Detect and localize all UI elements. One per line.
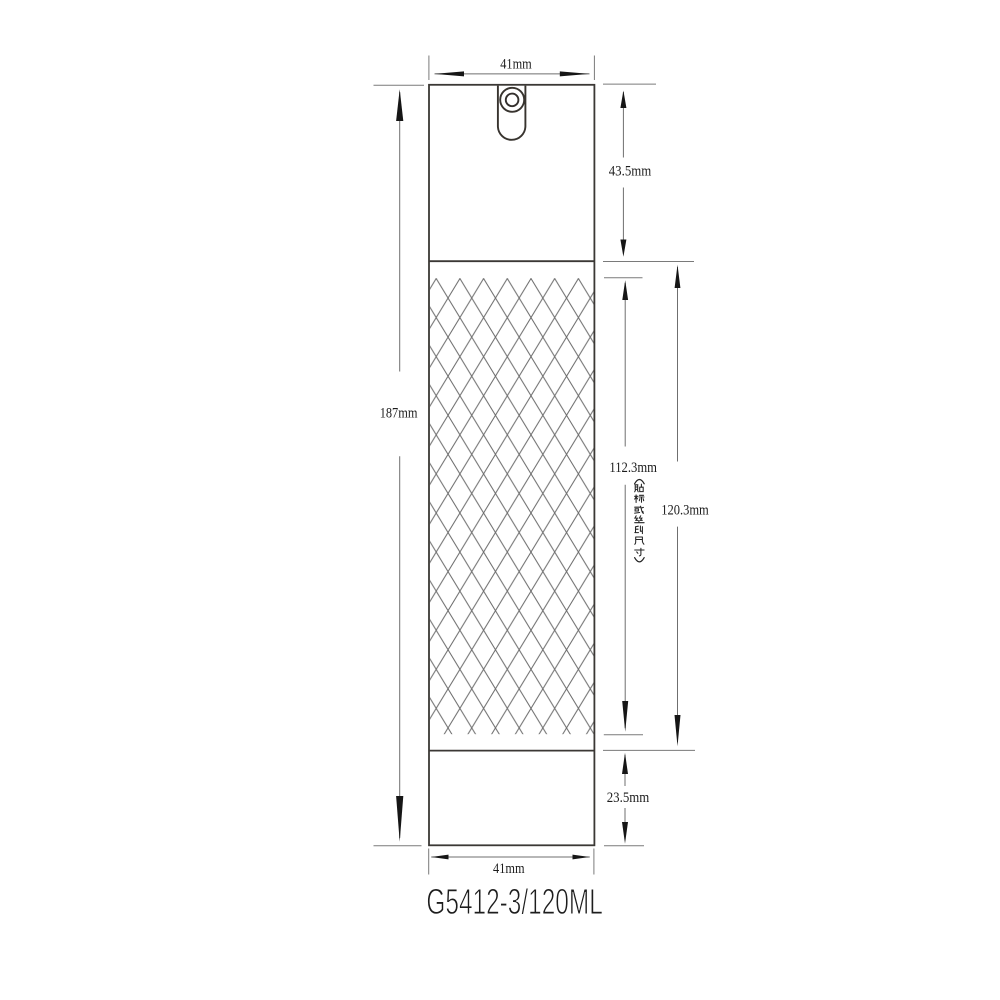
svg-text:41mm: 41mm — [500, 56, 532, 72]
svg-text:187mm: 187mm — [380, 406, 418, 422]
svg-text:43.5mm: 43.5mm — [609, 164, 652, 180]
svg-text:112.3mm: 112.3mm — [609, 460, 657, 476]
svg-text:120.3mm: 120.3mm — [661, 503, 709, 519]
svg-text:23.5mm: 23.5mm — [607, 790, 650, 806]
svg-text:41mm: 41mm — [493, 861, 525, 877]
svg-text:G5412-3/120ML: G5412-3/120ML — [426, 881, 602, 922]
